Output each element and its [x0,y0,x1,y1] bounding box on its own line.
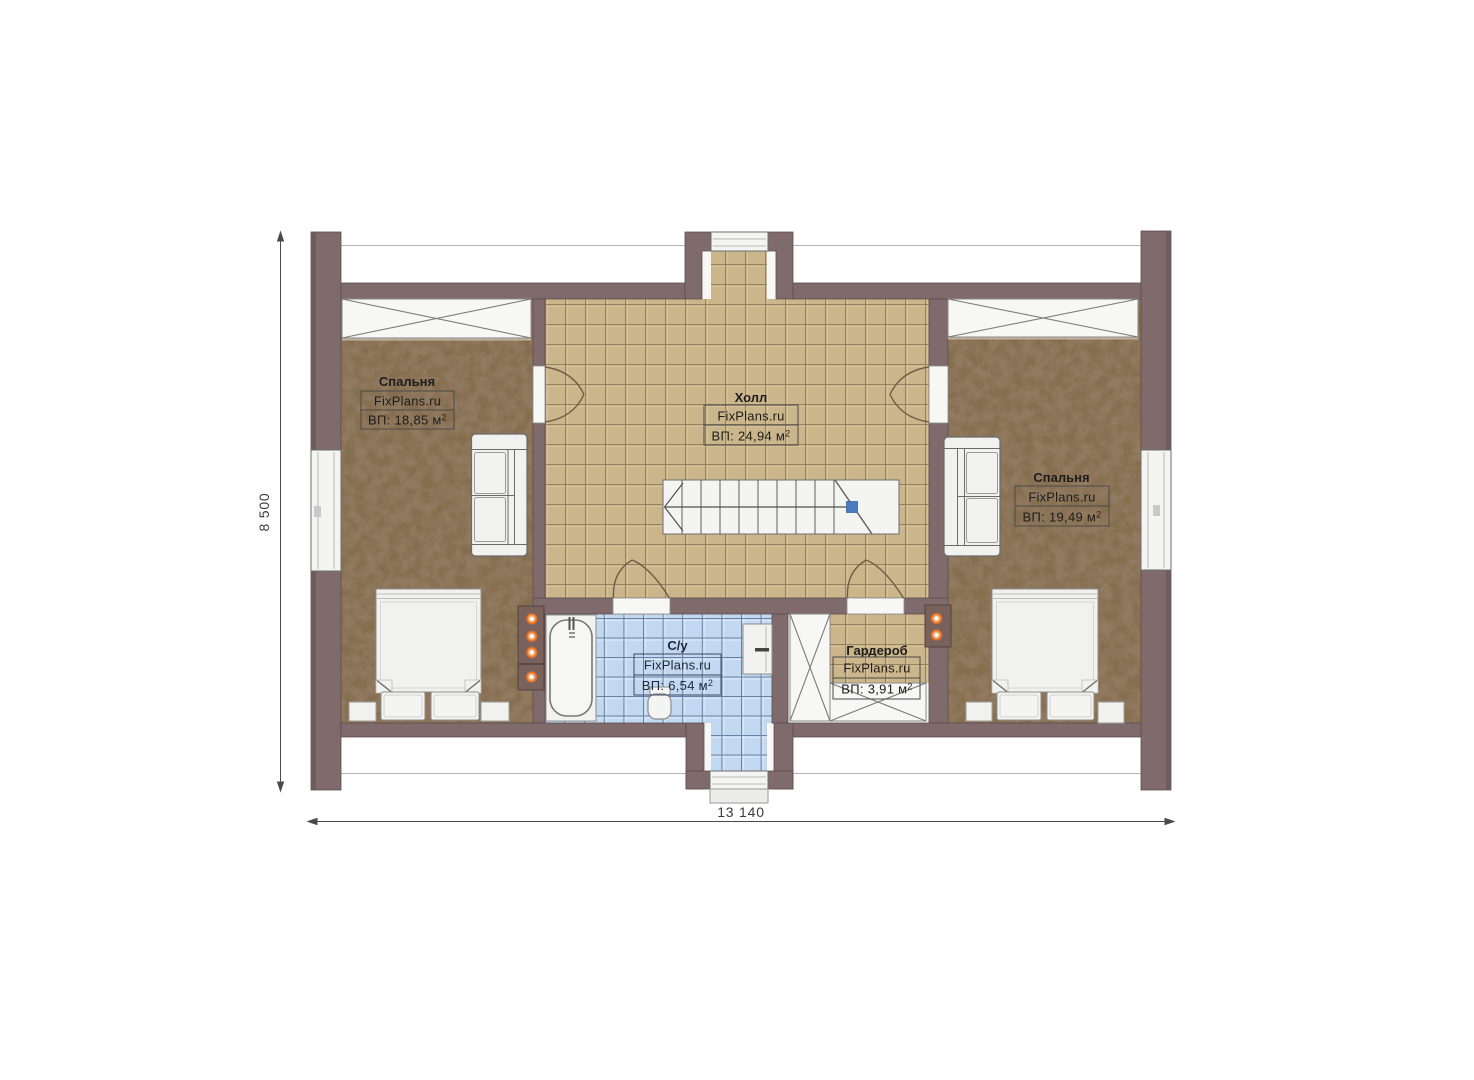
svg-text:ВП: 24,94 м2: ВП: 24,94 м2 [712,429,791,444]
svg-text:Спальня: Спальня [379,374,435,389]
svg-text:С/у: С/у [667,638,688,653]
svg-text:8 500: 8 500 [256,492,272,531]
svg-text:ВП: 19,49 м2: ВП: 19,49 м2 [1023,510,1102,525]
svg-text:Гардероб: Гардероб [846,643,907,658]
svg-text:FixPlans.ru: FixPlans.ru [717,409,784,424]
svg-text:FixPlans.ru: FixPlans.ru [843,661,910,676]
svg-text:Холл: Холл [735,390,768,405]
svg-text:ВП: 18,85 м2: ВП: 18,85 м2 [368,413,447,428]
svg-text:13 140: 13 140 [717,804,765,820]
svg-text:Спальня: Спальня [1033,470,1089,485]
svg-text:FixPlans.ru: FixPlans.ru [374,394,441,409]
svg-text:ВП: 6,54 м2: ВП: 6,54 м2 [642,678,713,693]
svg-text:FixPlans.ru: FixPlans.ru [1028,490,1095,505]
svg-text:ВП: 3,91 м2: ВП: 3,91 м2 [841,682,912,697]
svg-text:FixPlans.ru: FixPlans.ru [644,658,711,673]
